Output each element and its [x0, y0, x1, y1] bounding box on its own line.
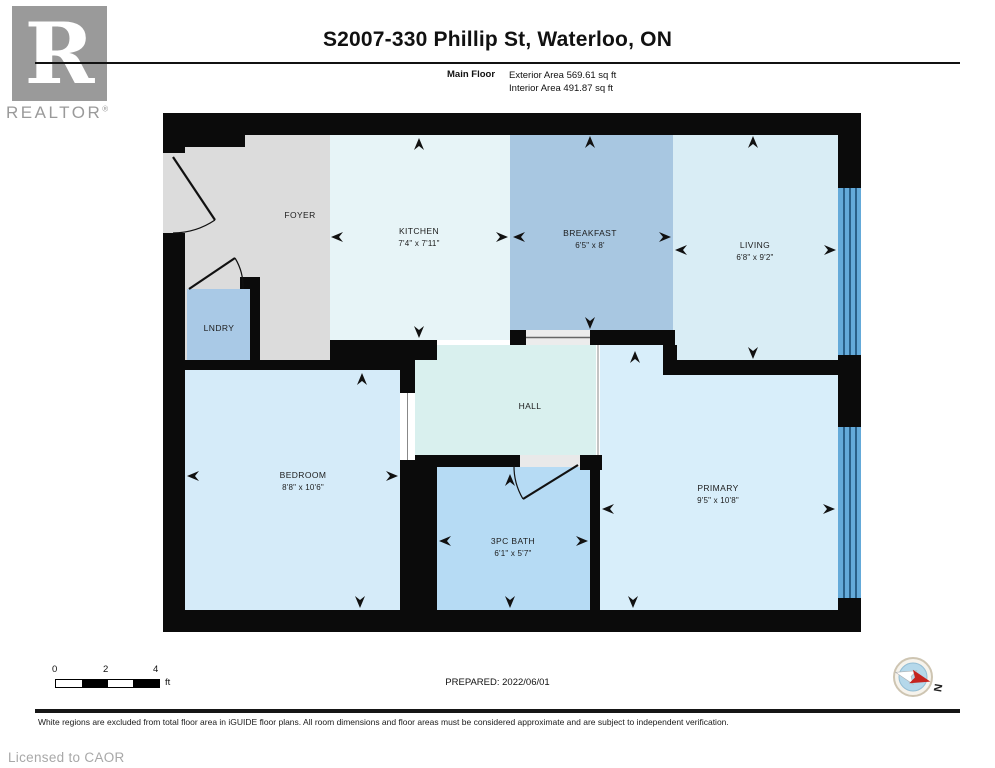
breakfast-label: BREAKFAST: [563, 228, 617, 238]
license-text: Licensed to CAOR: [8, 750, 125, 765]
bedroom-label: BEDROOM: [280, 470, 327, 480]
realtor-logo-wordmark: REALTOR®: [6, 103, 136, 123]
primary-label: PRIMARY: [697, 483, 738, 493]
lndry-label: LNDRY: [204, 323, 235, 333]
living-label: LIVING: [740, 240, 770, 250]
registered-mark: ®: [102, 104, 108, 113]
bath-label: 3PC BATH: [491, 536, 535, 546]
realtor-logo: R: [12, 6, 107, 101]
realtor-logo-letter: R: [25, 12, 95, 96]
interior-area: Interior Area 491.87 sq ft: [509, 83, 613, 94]
room-hall: [415, 345, 597, 455]
kitchen-label: KITCHEN: [399, 226, 439, 236]
scale-tick-4: 4: [153, 664, 158, 675]
bath-dims: 6'1" x 5'7": [494, 549, 531, 558]
floor-plan: FOYER LNDRY KITCHEN 7'4" x 7'11" BREAKFA…: [163, 113, 861, 632]
floor-label: Main Floor: [447, 69, 495, 95]
scale-tick-0: 0: [52, 664, 57, 675]
hall-label: HALL: [519, 401, 542, 411]
disclaimer-text: White regions are excluded from total fl…: [38, 717, 968, 727]
room-kitchen: [330, 135, 510, 340]
exterior-area: Exterior Area 569.61 sq ft: [509, 70, 616, 81]
prepared-date: PREPARED: 2022/06/01: [0, 677, 995, 688]
living-dims: 6'8" x 9'2": [736, 253, 773, 262]
primary-dims: 9'5" x 10'8": [697, 496, 739, 505]
footer-divider: [35, 709, 960, 713]
bedroom-dims: 8'8" x 10'6": [282, 483, 324, 492]
window-primary-icon: [838, 427, 861, 598]
room-foyer-doorway: [163, 153, 185, 233]
kitchen-dims: 7'4" x 7'11": [398, 239, 439, 248]
compass-icon: N: [885, 650, 965, 710]
compass-north-label: N: [931, 683, 944, 693]
foyer-label: FOYER: [284, 210, 315, 220]
area-values: Exterior Area 569.61 sq ft Interior Area…: [509, 69, 616, 95]
header-divider: [35, 62, 960, 64]
window-living-icon: [838, 188, 861, 355]
page-title: S2007-330 Phillip St, Waterloo, ON: [0, 28, 995, 52]
scale-tick-2: 2: [103, 664, 108, 675]
floor-area-summary: Main Floor Exterior Area 569.61 sq ft In…: [447, 69, 616, 95]
breakfast-dims: 6'5" x 8': [575, 241, 605, 250]
